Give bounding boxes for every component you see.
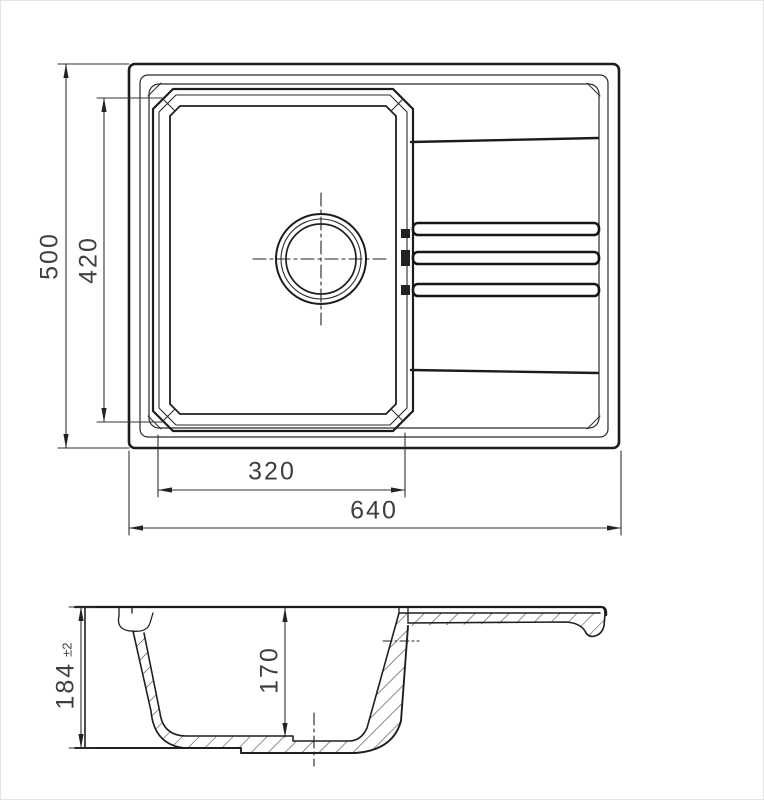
bowl-inner-edge bbox=[170, 106, 396, 414]
dim-184-arrow-top bbox=[78, 607, 83, 621]
dim-320-arrow-left bbox=[158, 487, 172, 492]
groove-end-mark-1 bbox=[401, 229, 410, 238]
dim-640-arrow-left bbox=[129, 525, 143, 530]
groove-end-mark-2 bbox=[401, 250, 410, 266]
drain-hole bbox=[253, 193, 389, 325]
dim-170-arrow-top bbox=[282, 608, 287, 622]
drawing-linework bbox=[1, 1, 764, 800]
dim-overall-depth-label: 500 bbox=[36, 232, 65, 280]
groove-band-2 bbox=[413, 252, 599, 264]
tap-hole-boss bbox=[119, 607, 154, 631]
section-hatched-shell bbox=[133, 613, 605, 753]
groove-end-mark-3 bbox=[401, 285, 410, 295]
dim-bowl-length-label: 420 bbox=[75, 236, 104, 284]
dim-overall-height-label: 184±2 bbox=[52, 642, 81, 709]
drain-centerlines bbox=[253, 193, 389, 325]
dim-184-arrow-bottom bbox=[78, 734, 83, 748]
dim-420-arrow-top bbox=[101, 98, 106, 112]
sink-technical-drawing: 500 420 320 640 184±2 170 bbox=[0, 0, 764, 800]
dim-640-arrow-right bbox=[607, 525, 621, 530]
dim-overall-height-tolerance: ±2 bbox=[60, 642, 75, 656]
section-bottom-profile bbox=[75, 626, 408, 753]
dim-overall-height-value: 184 bbox=[52, 662, 80, 710]
dim-overall-width-label: 640 bbox=[350, 497, 398, 526]
bowl-outer-edge bbox=[153, 89, 413, 431]
dim-170-arrow-bottom bbox=[282, 723, 287, 737]
groove-top bbox=[411, 138, 598, 142]
dim-320-arrow-right bbox=[391, 487, 405, 492]
groove-band-1 bbox=[413, 223, 599, 235]
dim-500-arrow-top bbox=[63, 64, 68, 78]
dim-420-arrow-bottom bbox=[101, 408, 106, 422]
bowl-bevel-line bbox=[159, 95, 407, 425]
bowl-corner-facets bbox=[163, 99, 403, 421]
section-view bbox=[69, 607, 606, 766]
dim-bowl-depth-label: 170 bbox=[256, 646, 285, 694]
groove-band-3 bbox=[413, 284, 599, 296]
top-view bbox=[58, 64, 621, 535]
groove-bottom bbox=[411, 370, 598, 373]
drainboard-grooves bbox=[401, 138, 599, 373]
dim-bowl-width-label: 320 bbox=[248, 458, 296, 487]
dim-500-arrow-bottom bbox=[63, 434, 68, 448]
